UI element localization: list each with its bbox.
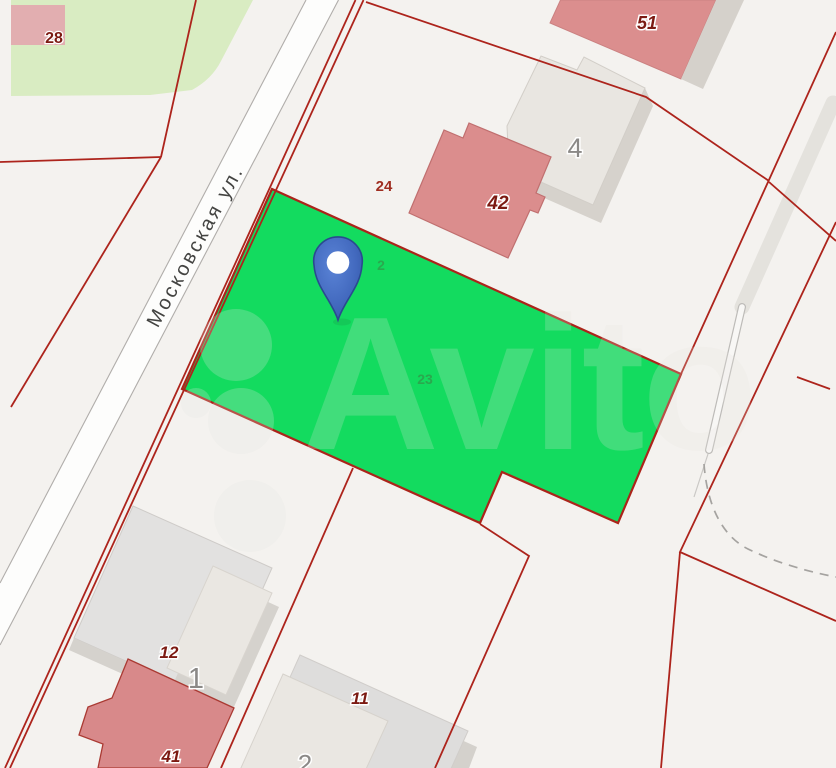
svg-text:28: 28 bbox=[45, 30, 63, 47]
svg-text:41: 41 bbox=[161, 747, 181, 766]
svg-text:12: 12 bbox=[160, 643, 179, 662]
svg-text:2: 2 bbox=[298, 749, 312, 768]
svg-text:11: 11 bbox=[351, 689, 369, 708]
svg-text:2: 2 bbox=[377, 257, 385, 273]
svg-text:42: 42 bbox=[486, 193, 509, 214]
svg-text:1: 1 bbox=[188, 663, 204, 695]
svg-text:4: 4 bbox=[567, 133, 582, 163]
svg-text:24: 24 bbox=[376, 178, 393, 195]
svg-text:Avito: Avito bbox=[302, 278, 755, 490]
svg-text:51: 51 bbox=[637, 13, 657, 33]
